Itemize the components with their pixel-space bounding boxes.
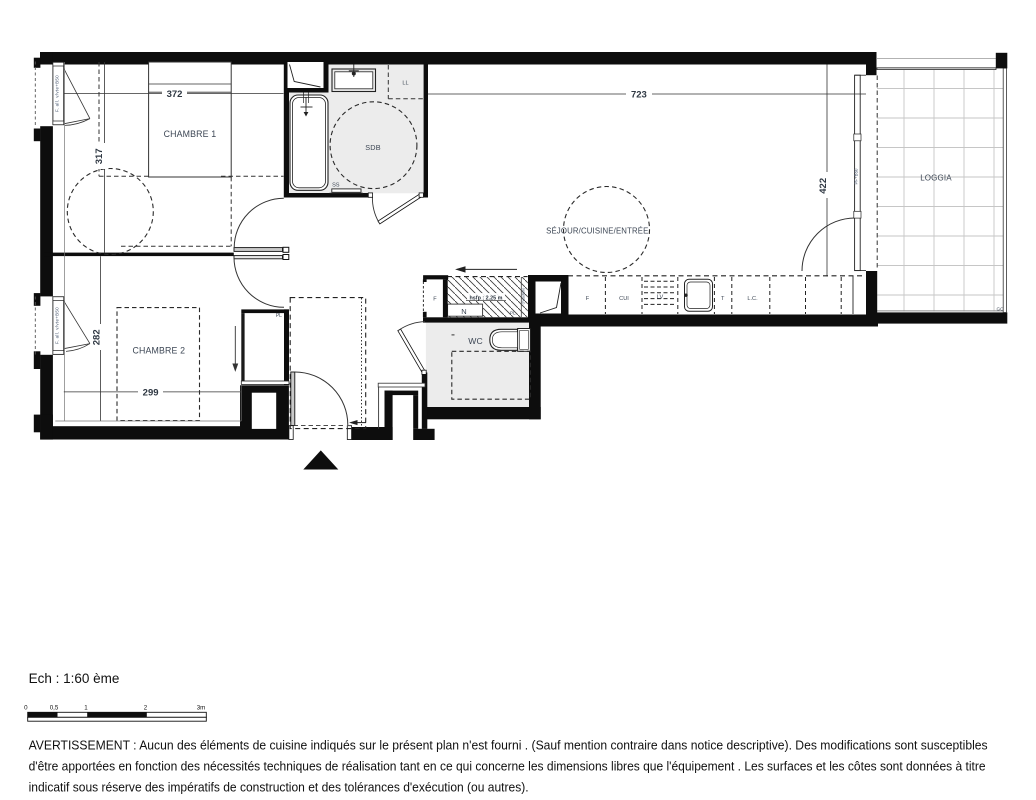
svg-text:1: 1 <box>84 705 88 712</box>
svg-text:PL: PL <box>276 313 282 319</box>
svg-text:N: N <box>461 307 467 316</box>
svg-text:AVERTISSEMENT : Aucun des élém: AVERTISSEMENT : Aucun des éléments de cu… <box>29 738 988 753</box>
svg-text:SÉJOUR/CUISINE/ENTRÉE: SÉJOUR/CUISINE/ENTRÉE <box>546 227 648 236</box>
svg-text:F. all. v/vte+B50: F. all. v/vte+B50 <box>55 307 60 344</box>
svg-text:282: 282 <box>92 329 103 345</box>
svg-text:SDB: SDB <box>365 143 380 152</box>
svg-text:d'être apportées en fonction d: d'être apportées en fonction des nécessi… <box>29 759 986 774</box>
svg-text:3m: 3m <box>197 705 206 712</box>
svg-text:T: T <box>721 296 725 302</box>
svg-text:SS: SS <box>332 183 340 189</box>
svg-text:WC: WC <box>468 336 483 346</box>
svg-text:GC: GC <box>997 306 1005 311</box>
svg-text:LL: LL <box>402 81 408 87</box>
svg-text:372: 372 <box>167 89 183 100</box>
svg-text:chaudière: chaudière <box>522 288 526 305</box>
svg-text:CUI: CUI <box>619 296 629 302</box>
svg-text:CHAMBRE 1: CHAMBRE 1 <box>164 129 217 139</box>
svg-text:2: 2 <box>144 705 148 712</box>
svg-text:317: 317 <box>94 148 105 164</box>
svg-text:422: 422 <box>818 178 829 194</box>
svg-text:L.C.: L.C. <box>747 296 758 302</box>
svg-text:F: F <box>586 296 590 302</box>
svg-text:indicatif sous réserve des imp: indicatif sous réserve des impératifs de… <box>29 780 529 795</box>
svg-text:LV: LV <box>657 294 664 300</box>
svg-text:LOGGIA: LOGGIA <box>920 173 952 182</box>
svg-text:0: 0 <box>24 705 28 712</box>
svg-text:723: 723 <box>631 90 647 101</box>
svg-text:0,5: 0,5 <box>50 705 59 712</box>
svg-text:F. all. v/vte+B50: F. all. v/vte+B50 <box>55 75 60 112</box>
svg-text:299: 299 <box>143 388 159 399</box>
svg-text:F: F <box>433 297 437 303</box>
svg-text:PF+B50: PF+B50 <box>854 168 859 185</box>
svg-text:PL: PL <box>510 310 516 315</box>
svg-text:Ech : 1:60 ème: Ech : 1:60 ème <box>29 671 120 686</box>
svg-text:CHAMBRE 2: CHAMBRE 2 <box>132 345 185 355</box>
